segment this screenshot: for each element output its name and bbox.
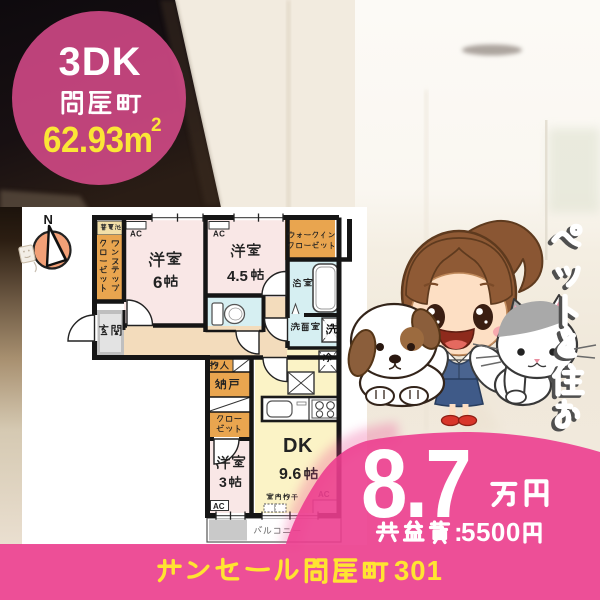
svg-text:4.5: 4.5 bbox=[227, 268, 248, 285]
svg-text:5500: 5500 bbox=[461, 517, 521, 547]
svg-text:N: N bbox=[44, 212, 53, 227]
svg-text:AC: AC bbox=[213, 502, 225, 511]
svg-text:DK: DK bbox=[283, 435, 313, 457]
svg-text:3DK: 3DK bbox=[58, 40, 141, 84]
svg-text:AC: AC bbox=[213, 230, 225, 239]
svg-text:AC: AC bbox=[130, 230, 142, 239]
svg-text:301: 301 bbox=[394, 555, 443, 586]
svg-text:62.93m: 62.93m bbox=[43, 121, 153, 161]
svg-text:9.6: 9.6 bbox=[279, 466, 301, 483]
svg-text:2: 2 bbox=[151, 115, 162, 136]
svg-text:3: 3 bbox=[219, 474, 227, 490]
svg-text:6: 6 bbox=[153, 273, 162, 292]
